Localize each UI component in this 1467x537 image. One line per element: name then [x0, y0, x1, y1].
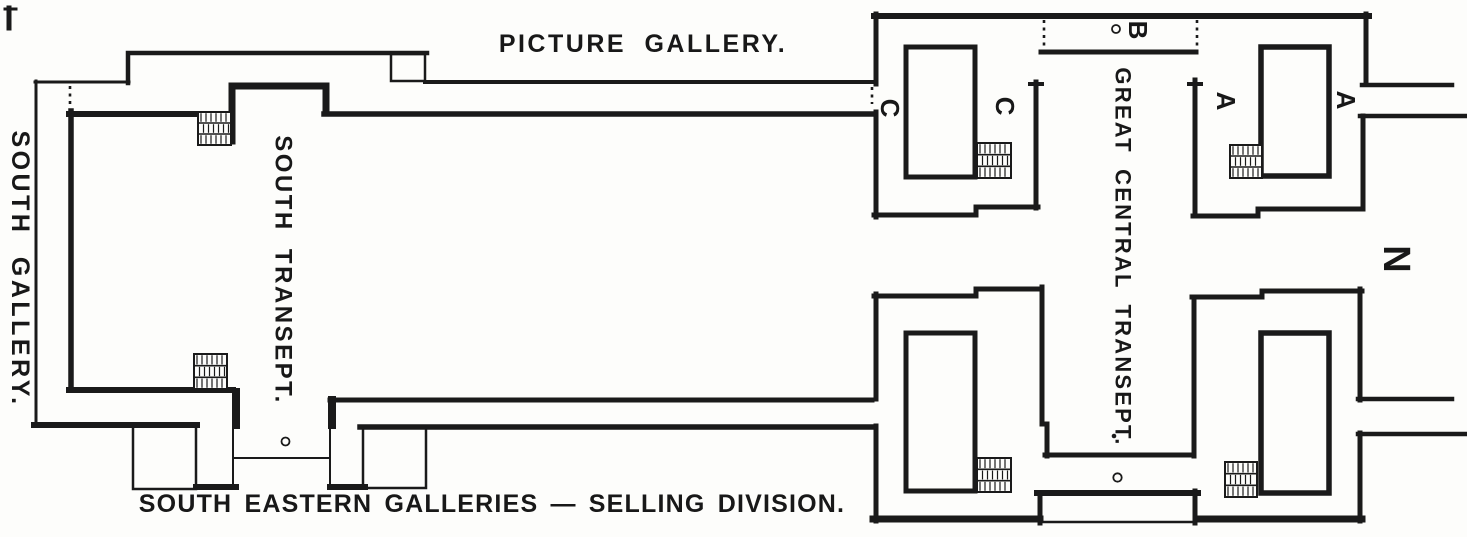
court-sw-room — [906, 333, 975, 491]
south-entrance-recess — [233, 427, 330, 487]
roof-notch-box — [391, 54, 425, 81]
label-south-gallery: SOUTH GALLERY. — [6, 130, 34, 407]
court-se-room — [1261, 333, 1329, 493]
label-south-eastern-galleries: SOUTH EASTERN GALLERIES — SELLING DIVISI… — [139, 490, 845, 518]
court-ne-south-wall — [1193, 209, 1362, 216]
court-nw-room — [906, 47, 975, 177]
staircase-hatch-court-ne — [1230, 145, 1262, 178]
circle-marker-south-entry — [1113, 473, 1121, 481]
marker-stand-a-inner: A — [1211, 92, 1241, 111]
marker-stand-c-west: C — [875, 99, 905, 118]
staircase-hatch-court-nw — [977, 143, 1011, 178]
label-south-transept: SOUTH TRANSEPT. — [270, 135, 297, 405]
staircase-hatch-court-sw — [977, 458, 1011, 492]
staircase-hatch-court-se — [1225, 462, 1257, 497]
marker-stand-a-east: A — [1331, 91, 1361, 110]
staircase-hatch-sw — [194, 354, 227, 389]
marker-stand-b: B — [1123, 21, 1153, 40]
floor-plan-svg: PICTURE GALLERY. SOUTH GALLERY. SOUTH TR… — [0, 0, 1467, 537]
label-great-central-transept: GREAT CENTRAL TRANSEPT. — [1111, 67, 1136, 446]
staircase-hatch-nw — [198, 112, 231, 145]
court-nw-south-wall — [874, 207, 1038, 215]
court-ne-room — [1261, 47, 1329, 176]
transept-north-arm — [232, 86, 326, 141]
south-bay-west — [133, 427, 196, 489]
court-se-north-wall — [1192, 291, 1362, 297]
marker-stand-c-inner: C — [990, 97, 1020, 116]
north-outer-wall-step — [128, 53, 427, 83]
south-bay-east — [363, 428, 426, 488]
marker-north-indicator: N — [1375, 245, 1417, 272]
south-transept-block — [34, 53, 872, 489]
court-sw-east-wall — [1042, 287, 1047, 456]
label-picture-gallery: PICTURE GALLERY. — [499, 30, 787, 58]
court-sw-north-wall — [874, 289, 1042, 296]
floor-plan-page: PICTURE GALLERY. SOUTH GALLERY. SOUTH TR… — [0, 0, 1467, 537]
entrance-circle-south — [282, 438, 290, 446]
circle-marker-north-entry — [1112, 25, 1120, 33]
